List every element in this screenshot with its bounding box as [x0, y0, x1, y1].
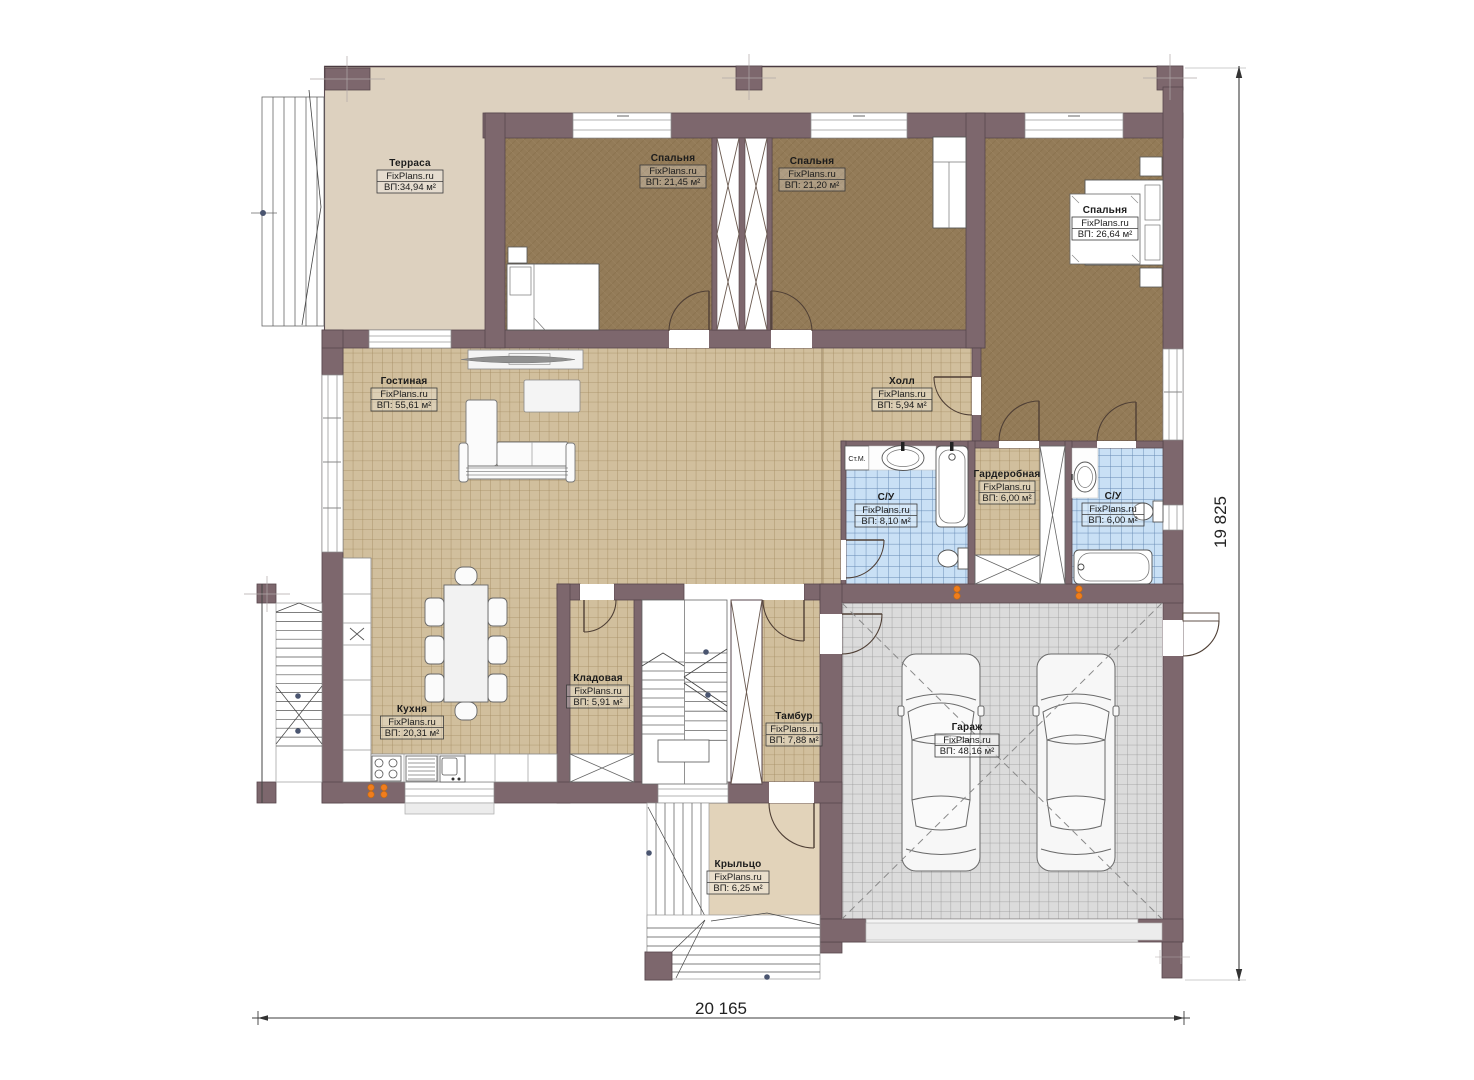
svg-text:FixPlans.ru: FixPlans.ru — [1089, 504, 1137, 515]
svg-text:FixPlans.ru: FixPlans.ru — [862, 505, 910, 516]
svg-text:FixPlans.ru: FixPlans.ru — [714, 872, 762, 883]
svg-text:ВП: 6,00 м²: ВП: 6,00 м² — [1088, 515, 1137, 526]
svg-text:ВП: 21,20 м²: ВП: 21,20 м² — [785, 180, 840, 191]
svg-text:FixPlans.ru: FixPlans.ru — [943, 735, 991, 746]
svg-text:ВП: 5,94 м²: ВП: 5,94 м² — [877, 400, 926, 411]
svg-text:ВП: 20,31 м²: ВП: 20,31 м² — [385, 728, 440, 739]
svg-text:FixPlans.ru: FixPlans.ru — [574, 686, 622, 697]
svg-text:FixPlans.ru: FixPlans.ru — [1081, 218, 1129, 229]
svg-text:ВП: 5,91 м²: ВП: 5,91 м² — [573, 697, 622, 708]
svg-text:FixPlans.ru: FixPlans.ru — [788, 169, 836, 180]
svg-text:ВП: 7,88 м²: ВП: 7,88 м² — [769, 735, 818, 746]
svg-text:ВП: 21,45 м²: ВП: 21,45 м² — [646, 177, 701, 188]
svg-text:ВП: 8,10 м²: ВП: 8,10 м² — [861, 516, 910, 527]
svg-text:Терраса: Терраса — [389, 158, 431, 169]
svg-text:С/У: С/У — [1105, 491, 1122, 502]
svg-text:Гараж: Гараж — [952, 722, 984, 733]
svg-text:FixPlans.ru: FixPlans.ru — [386, 171, 434, 182]
svg-text:Крыльцо: Крыльцо — [715, 859, 762, 870]
svg-text:FixPlans.ru: FixPlans.ru — [878, 389, 926, 400]
svg-text:Спальня: Спальня — [790, 156, 835, 167]
svg-text:Спальня: Спальня — [651, 153, 696, 164]
svg-text:Тамбур: Тамбур — [775, 710, 812, 722]
svg-text:FixPlans.ru: FixPlans.ru — [388, 717, 436, 728]
svg-text:20 165: 20 165 — [695, 999, 747, 1018]
svg-text:FixPlans.ru: FixPlans.ru — [380, 389, 428, 400]
svg-text:Спальня: Спальня — [1083, 205, 1128, 216]
svg-text:ВП: 48,16 м²: ВП: 48,16 м² — [940, 746, 995, 757]
svg-text:Кладовая: Кладовая — [573, 673, 623, 684]
svg-text:19 825: 19 825 — [1211, 496, 1230, 548]
svg-text:ВП: 55,61 м²: ВП: 55,61 м² — [377, 400, 432, 411]
svg-text:Гардеробная: Гардеробная — [974, 468, 1041, 480]
svg-text:ВП:34,94 м²: ВП:34,94 м² — [384, 182, 436, 193]
svg-text:Гостиная: Гостиная — [381, 376, 428, 387]
svg-text:Холл: Холл — [889, 376, 915, 387]
svg-text:ВП: 6,00 м²: ВП: 6,00 м² — [982, 493, 1031, 504]
svg-text:FixPlans.ru: FixPlans.ru — [770, 724, 818, 735]
svg-text:ВП: 6,25 м²: ВП: 6,25 м² — [713, 883, 762, 894]
svg-text:Кухня: Кухня — [397, 704, 427, 715]
svg-text:Ст.М.: Ст.М. — [848, 456, 865, 463]
svg-text:FixPlans.ru: FixPlans.ru — [649, 166, 697, 177]
svg-text:ВП: 26,64 м²: ВП: 26,64 м² — [1078, 229, 1133, 240]
svg-text:FixPlans.ru: FixPlans.ru — [983, 482, 1031, 493]
svg-text:С/У: С/У — [878, 492, 895, 503]
